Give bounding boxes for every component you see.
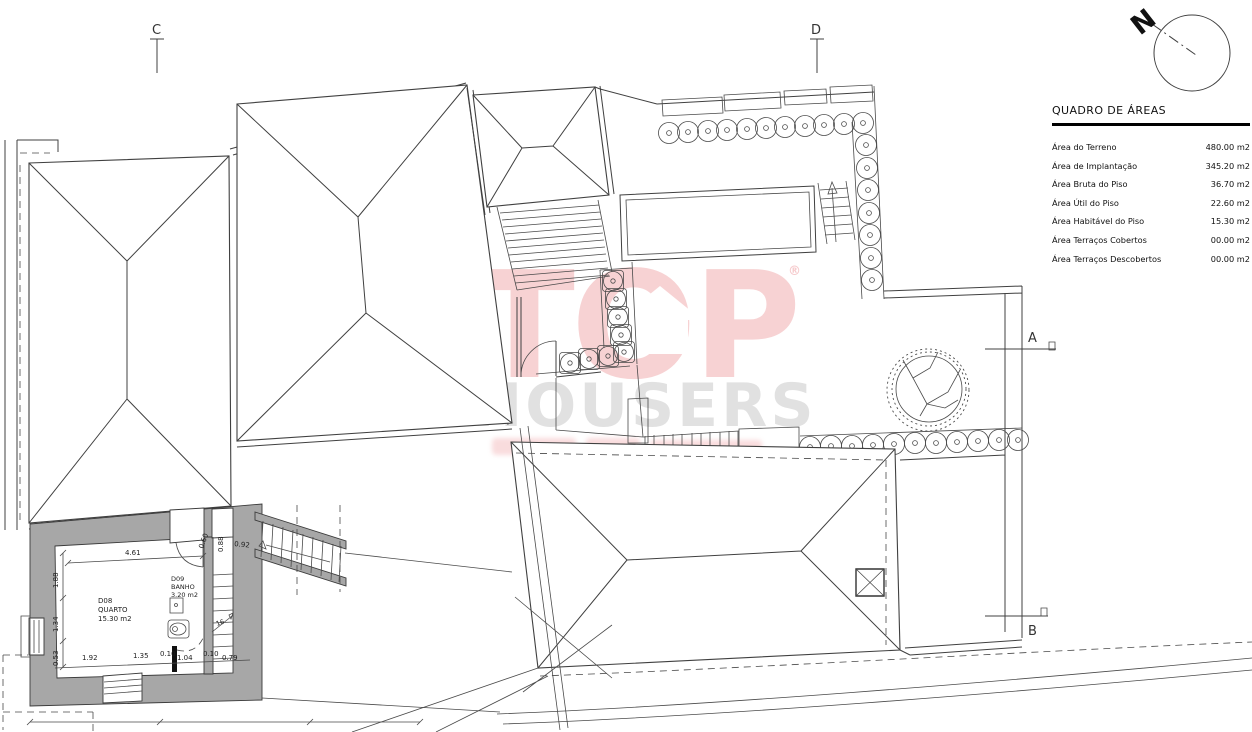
floor-plan-sheet: TOP ® HOUSERS C D A <box>0 0 1252 732</box>
pool-side-stair <box>818 181 855 244</box>
tree <box>887 349 969 431</box>
svg-text:N: N <box>1125 3 1162 41</box>
quarto-code: D08 <box>98 597 112 605</box>
dim-left-3: 0.53 <box>52 650 60 666</box>
table-row: Área do Terreno 480.00 m2 <box>1052 138 1250 157</box>
banho-area: 3.20 m2 <box>171 591 198 599</box>
section-marker-b: B <box>985 608 1048 639</box>
terrace-edge-line <box>345 553 512 572</box>
banho-code: D09 <box>171 575 184 583</box>
planter-l-shape <box>536 262 637 374</box>
north-arrow-icon: N <box>1125 3 1230 91</box>
left-window <box>21 616 44 657</box>
svg-text:C: C <box>152 23 161 38</box>
row-label: Área do Terreno <box>1052 138 1117 157</box>
area-table: QUADRO DE ÁREAS Área do Terreno 480.00 m… <box>1052 104 1250 268</box>
row-label: Área Útil do Piso <box>1052 194 1119 213</box>
dim-left-2: 1.34 <box>52 616 60 632</box>
dim-bottom-1: 1.92 <box>82 654 98 662</box>
banho-name: BANHO <box>171 583 195 591</box>
dim-tr-2: 0.88 <box>217 536 225 552</box>
terrace-boundary-right <box>884 286 1022 655</box>
row-label: Área Bruta do Piso <box>1052 175 1128 194</box>
table-row: Área Terraços Descobertos 00.00 m2 <box>1052 250 1250 269</box>
chimney <box>856 569 884 596</box>
quarto-name: QUARTO <box>98 606 128 614</box>
dim-bottom-2: 1.35 <box>133 652 149 660</box>
exterior-stair <box>255 512 346 586</box>
entry-door-gap <box>170 508 204 543</box>
building-bedroom <box>21 504 262 706</box>
terrace-door <box>517 297 601 377</box>
table-row: Área de Implantação 345.20 m2 <box>1052 157 1250 176</box>
stair-slot <box>212 508 233 538</box>
table-row: Área Habitável do Piso 15.30 m2 <box>1052 212 1250 231</box>
section-marker-c: C <box>150 23 164 73</box>
area-table-title: QUADRO DE ÁREAS <box>1052 104 1250 123</box>
row-label: Área Terraços Descobertos <box>1052 250 1161 269</box>
table-row: Área Útil do Piso 22.60 m2 <box>1052 194 1250 213</box>
row-value: 00.00 m2 <box>1211 231 1250 250</box>
svg-text:D: D <box>811 23 821 38</box>
table-row: Área Terraços Cobertos 00.00 m2 <box>1052 231 1250 250</box>
dim-tr-3: 0.92 <box>234 540 250 550</box>
dim-room-width: 4.61 <box>125 549 141 557</box>
area-table-rule <box>1052 123 1250 126</box>
row-label: Área Terraços Cobertos <box>1052 231 1147 250</box>
row-value: 345.20 m2 <box>1206 157 1250 176</box>
pool <box>620 186 816 261</box>
row-value: 22.60 m2 <box>1211 194 1250 213</box>
row-value: 36.70 m2 <box>1211 175 1250 194</box>
terrace-planter-boxes <box>595 85 874 116</box>
dim-bottom-3: 0.10 <box>160 650 176 658</box>
section-marker-a: A <box>985 331 1056 350</box>
row-value: 00.00 m2 <box>1211 250 1250 269</box>
dim-bottom-5: 0.10 <box>203 650 219 658</box>
svg-text:B: B <box>1028 624 1037 639</box>
roof-center <box>230 83 512 447</box>
quarto-area: 15.30 m2 <box>98 615 132 623</box>
hedge-row-top <box>659 113 874 144</box>
row-value: 15.30 m2 <box>1211 212 1250 231</box>
svg-text:A: A <box>1028 331 1037 346</box>
dim-left-1: 1.88 <box>52 572 60 588</box>
table-row: Área Bruta do Piso 36.70 m2 <box>1052 175 1250 194</box>
roof-square <box>467 86 614 215</box>
roof-bottom-right <box>511 442 900 668</box>
bottom-window <box>103 673 142 703</box>
row-label: Área de Implantação <box>1052 157 1137 176</box>
dim-bottom-4: 1.04 <box>177 654 193 662</box>
section-marker-d: D <box>810 23 824 73</box>
roof-left <box>5 140 231 530</box>
dim-bottom-6: 0.79 <box>222 654 238 662</box>
row-value: 480.00 m2 <box>1206 138 1250 157</box>
row-label: Área Habitável do Piso <box>1052 212 1144 231</box>
hedge-column-right <box>852 86 884 299</box>
terrace-stair-lower <box>556 365 799 454</box>
